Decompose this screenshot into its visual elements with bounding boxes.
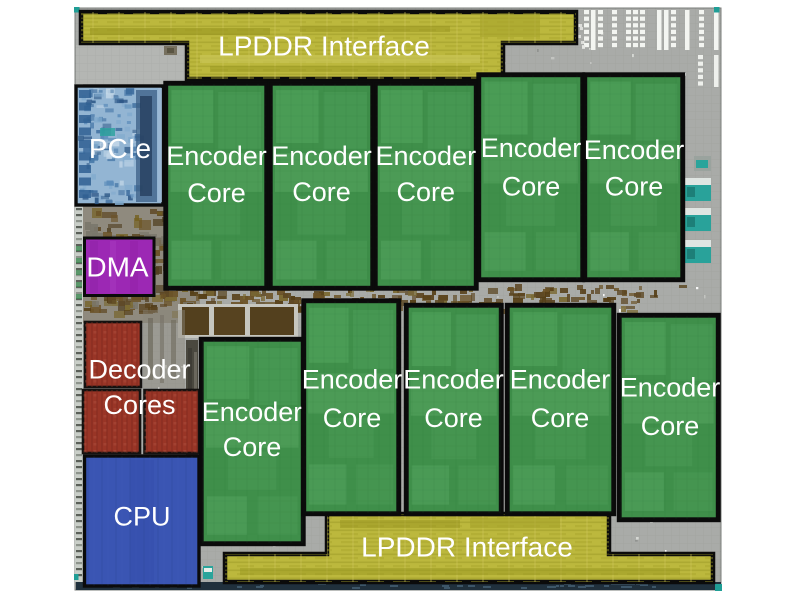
svg-text:Encoder: Encoder [510, 365, 611, 395]
svg-text:Encoder: Encoder [584, 135, 685, 165]
svg-text:Core: Core [323, 403, 382, 433]
svg-text:Cores: Cores [103, 390, 175, 420]
svg-text:Encoder: Encoder [202, 397, 303, 427]
svg-text:Core: Core [531, 403, 590, 433]
svg-text:Core: Core [641, 411, 700, 441]
svg-text:PCIe: PCIe [89, 133, 151, 164]
svg-text:Encoder: Encoder [166, 141, 267, 171]
svg-text:Core: Core [502, 172, 561, 202]
svg-text:Encoder: Encoder [271, 141, 372, 171]
svg-text:Encoder: Encoder [302, 365, 403, 395]
svg-text:Core: Core [605, 172, 664, 202]
svg-text:Core: Core [223, 432, 282, 462]
svg-text:Encoder: Encoder [620, 373, 721, 403]
svg-text:Core: Core [397, 177, 456, 207]
svg-text:Encoder: Encoder [376, 141, 477, 171]
svg-text:Encoder: Encoder [403, 365, 504, 395]
svg-text:LPDDR Interface: LPDDR Interface [361, 532, 573, 563]
svg-text:Core: Core [292, 177, 351, 207]
svg-text:CPU: CPU [113, 502, 170, 532]
svg-text:Decoder: Decoder [88, 355, 190, 385]
svg-text:Core: Core [424, 403, 483, 433]
svg-text:LPDDR Interface: LPDDR Interface [218, 31, 430, 62]
svg-text:Encoder: Encoder [481, 133, 582, 163]
svg-text:DMA: DMA [86, 252, 149, 283]
svg-text:Core: Core [187, 178, 246, 208]
